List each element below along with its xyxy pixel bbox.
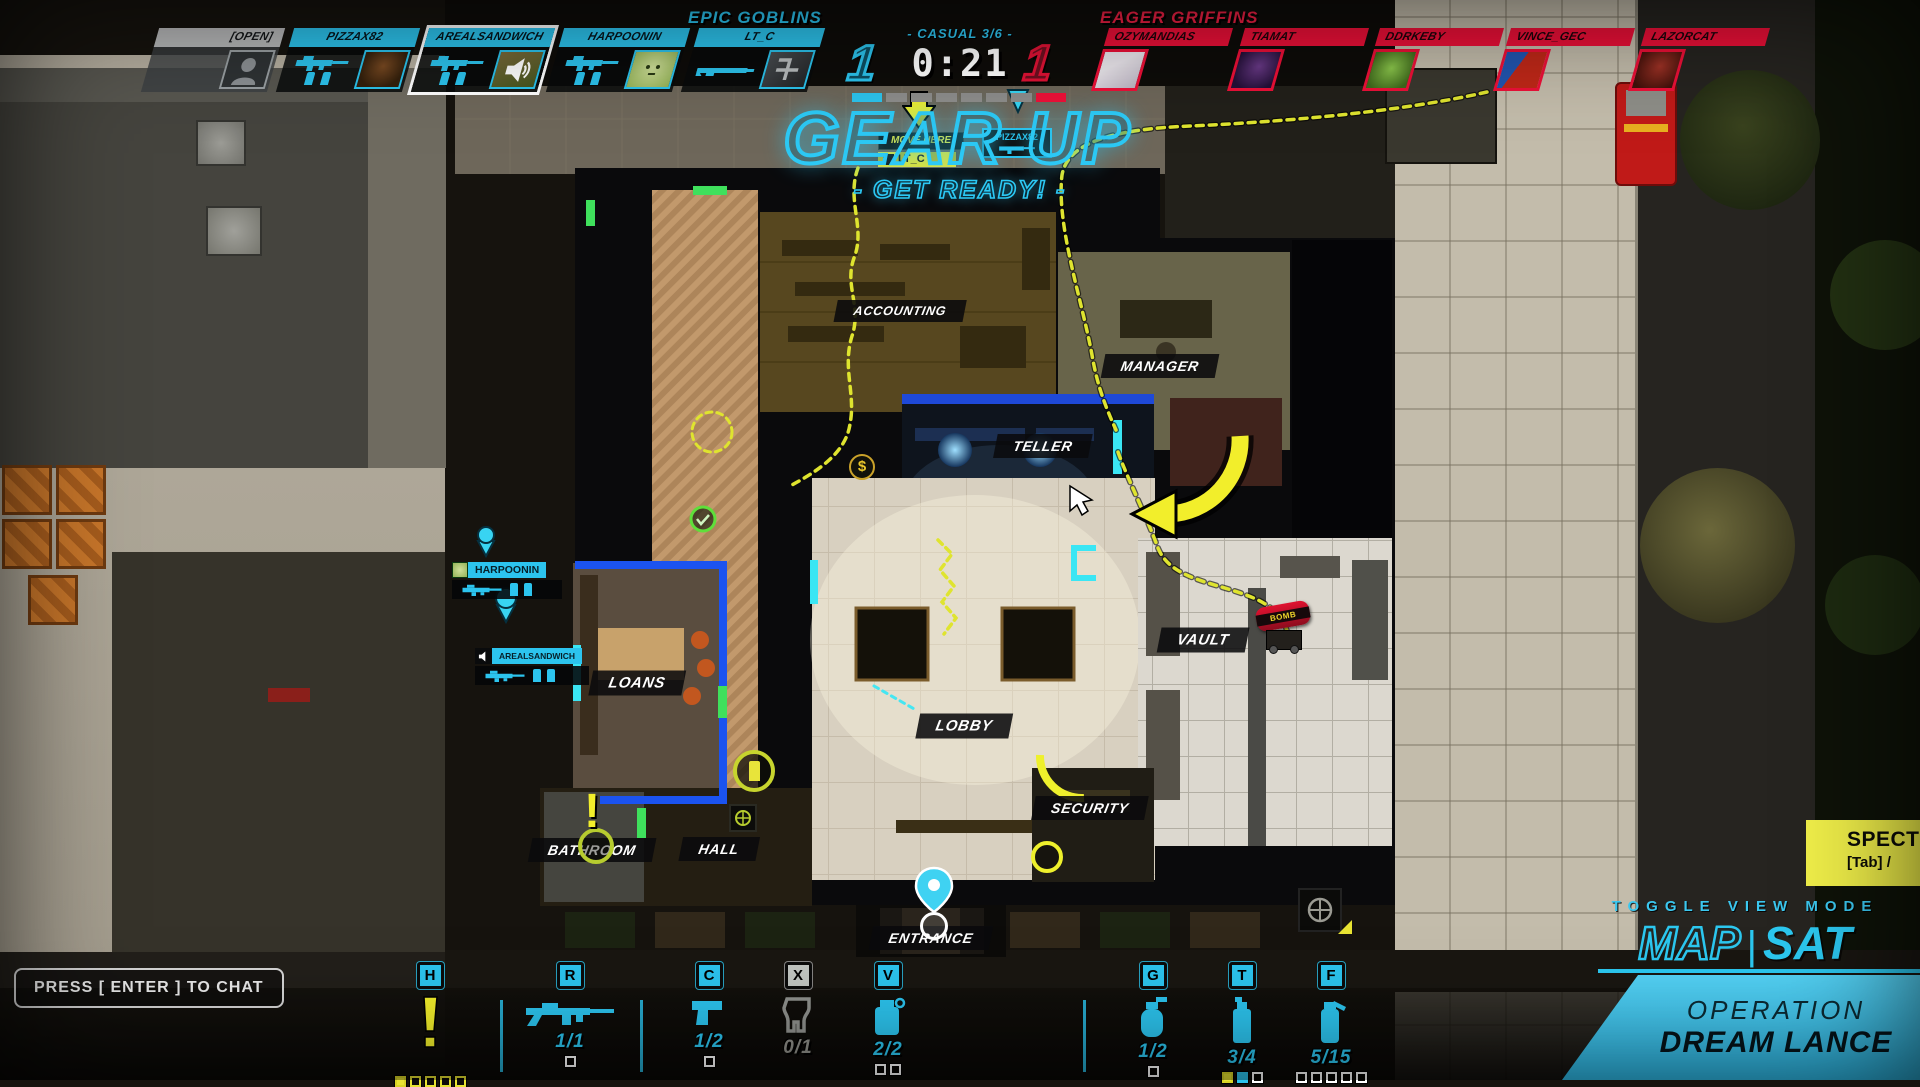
- hotkey-badge: F: [1318, 962, 1345, 989]
- avatar: [452, 562, 468, 578]
- hotkey-badge: R: [557, 962, 584, 989]
- split-circle-icon: [1306, 896, 1334, 924]
- hotkey-badge: T: [1229, 962, 1256, 989]
- cart-wheel: [1290, 645, 1299, 654]
- player-loadout: [551, 55, 630, 85]
- item-icon: [510, 583, 518, 596]
- announcement-subtitle: - GET READY! -: [0, 176, 1920, 205]
- alert-exclamation: !: [584, 788, 600, 836]
- shotgun-icon: [693, 63, 757, 77]
- panel-accent-line: [1598, 969, 1920, 973]
- pip: [886, 93, 907, 102]
- avatar: [624, 50, 681, 89]
- speaker-icon: [501, 57, 534, 83]
- cash-marker: $: [849, 454, 875, 480]
- player-card[interactable]: HARPOONIN: [546, 28, 690, 92]
- spray-can-icon: [749, 761, 760, 781]
- item-pips: [393, 1076, 468, 1087]
- pip: [565, 1056, 576, 1067]
- bomb-bag: BOMB: [1254, 599, 1311, 632]
- bomb-marker: BOMB: [1256, 604, 1310, 650]
- tag-loadout-bar: [452, 580, 562, 599]
- item-pips: [1220, 1072, 1265, 1083]
- room-label: VAULT: [1157, 628, 1250, 653]
- room-label: ACCOUNTING: [834, 300, 967, 322]
- pip: [890, 1064, 901, 1075]
- item-icon: [320, 72, 332, 85]
- player-card-highlighted[interactable]: AREALSANDWICH: [411, 28, 555, 92]
- avatar: [219, 50, 276, 89]
- player-card-open[interactable]: [OPEN]: [141, 28, 285, 92]
- item-icons: [574, 72, 602, 85]
- view-mode-toggle[interactable]: MAP|SAT: [1600, 916, 1890, 970]
- split-circle-icon: [734, 809, 752, 827]
- item-icon: [574, 72, 586, 85]
- objective-check-marker: [691, 507, 715, 531]
- arealsandwich-map-tag: AREALSANDWICH: [475, 648, 589, 685]
- toggle-view-label: TOGGLE VIEW MODE: [1600, 898, 1890, 915]
- avatar: [489, 50, 546, 89]
- smg-icon: [483, 670, 527, 682]
- player-card[interactable]: LT_C: [681, 28, 825, 92]
- player-name: [OPEN]: [154, 28, 285, 47]
- pip: [1341, 1072, 1352, 1083]
- item-pips: [563, 1056, 578, 1067]
- smg-icon: [562, 55, 623, 71]
- dark-rooms: [1292, 240, 1392, 538]
- smg-icon: [427, 55, 488, 71]
- player-card-body: [546, 47, 685, 92]
- pip: [1326, 1072, 1337, 1083]
- pip: [704, 1056, 715, 1067]
- ammo-count: 0/1: [783, 1037, 812, 1059]
- room-label: LOANS: [588, 671, 685, 696]
- pip: [1036, 93, 1066, 102]
- harpoonin-map-tag: HARPOONIN: [452, 562, 562, 599]
- hotbar-slot-rifle[interactable]: R 1/1: [504, 962, 636, 1067]
- announcement-title: GEAR UP: [0, 98, 1918, 180]
- pip: [1252, 1072, 1263, 1083]
- grenade-icon: [1135, 995, 1171, 1039]
- player-loadout: [688, 63, 762, 77]
- player-name: HARPOONIN: [559, 28, 690, 47]
- player-name: VINCE_GEC: [1506, 28, 1635, 46]
- flashbang-icon: [867, 995, 909, 1037]
- room-label: SECURITY: [1031, 796, 1149, 820]
- room-label: LOBBY: [915, 714, 1012, 739]
- chat-prompt[interactable]: PRESS [ ENTER ] TO CHAT: [14, 968, 284, 1008]
- equipment-box-marker: [1298, 888, 1342, 932]
- item-icons: [304, 72, 332, 85]
- player-name: TIAMAT: [1240, 28, 1369, 46]
- player-name: DDRKEBY: [1375, 28, 1504, 46]
- pip: [986, 93, 1007, 102]
- exclamation-icon: [420, 995, 440, 1049]
- team-name-right: EAGER GRIFFINS: [1100, 8, 1259, 28]
- player-card-body: [411, 47, 550, 92]
- view-mode-sat[interactable]: SAT: [1763, 917, 1852, 969]
- entrance-ring: [920, 912, 948, 940]
- lobby-table: [856, 608, 928, 680]
- item-icon: [455, 72, 467, 85]
- player-card-body: [681, 47, 820, 92]
- pistol-icon: [690, 995, 728, 1029]
- hotbar-divider: [500, 1000, 503, 1072]
- pip: [1237, 1072, 1248, 1083]
- pip: [911, 93, 932, 102]
- smg-icon: [460, 584, 504, 596]
- item-icon: [547, 669, 555, 682]
- enemy-card[interactable]: LAZORCAT: [1628, 28, 1770, 91]
- spectate-label: SPECT: [1847, 828, 1920, 852]
- tag-loadout-bar: [475, 666, 589, 685]
- score-left: 1: [845, 34, 879, 92]
- ammo-count: 1/2: [1138, 1041, 1167, 1063]
- room-label: TELLER: [993, 434, 1093, 458]
- avatar: [759, 50, 816, 89]
- hotkey-badge: H: [417, 962, 444, 989]
- pip: [395, 1076, 406, 1087]
- yellow-ring-marker: [1033, 843, 1061, 871]
- location-pin-icon: [914, 866, 954, 916]
- hotbar-slot-flashbang[interactable]: V 2/2: [822, 962, 954, 1075]
- item-pips: [873, 1064, 903, 1075]
- operation-label: OPERATION: [1687, 995, 1865, 1026]
- hotkey-badge: V: [875, 962, 902, 989]
- item-icon: [533, 669, 541, 682]
- ammo-count: 1/2: [694, 1031, 723, 1053]
- silhouette-icon: [229, 55, 266, 85]
- harness-icon: [777, 995, 819, 1035]
- rifle-icon: [522, 995, 618, 1029]
- corner-wedge: [1338, 920, 1352, 934]
- item-icon: [439, 72, 451, 85]
- player-loadout: [281, 55, 360, 85]
- player-name: OZYMANDIAS: [1104, 28, 1233, 46]
- team-name-left: EPIC GOBLINS: [688, 8, 822, 28]
- pip: [1011, 93, 1032, 102]
- speaker-icon: [475, 648, 492, 664]
- pip: [1148, 1066, 1159, 1077]
- pip: [936, 93, 957, 102]
- pip: [961, 93, 982, 102]
- ammo-count: 5/15: [1311, 1047, 1352, 1069]
- pip: [852, 93, 882, 102]
- smg-icon: [292, 55, 353, 71]
- player-card-body: [276, 47, 415, 92]
- hotkey-badge: C: [696, 962, 723, 989]
- bomb-cart: [1266, 630, 1302, 650]
- round-history-pips: [850, 93, 1068, 102]
- player-card-body: [141, 47, 280, 92]
- player-loadout: [416, 55, 495, 85]
- avatar: [354, 50, 411, 89]
- spray-can-icon: [1229, 995, 1255, 1045]
- teller-blue-wall: [902, 394, 1154, 404]
- item-pips: [1146, 1066, 1161, 1077]
- cart-wheel: [1269, 645, 1278, 654]
- pip: [1296, 1072, 1307, 1083]
- item-icon: [590, 72, 602, 85]
- hotkey-badge: G: [1140, 962, 1167, 989]
- spectate-button[interactable]: SPECT [Tab] /: [1806, 820, 1920, 886]
- pip: [425, 1076, 436, 1087]
- item-icons: [439, 72, 467, 85]
- ammo-count: 2/2: [873, 1039, 902, 1061]
- lobby-table: [1002, 608, 1074, 680]
- view-mode-map[interactable]: MAP: [1638, 917, 1740, 969]
- enemy-card[interactable]: TIAMAT: [1227, 28, 1369, 91]
- tag-name-row: HARPOONIN: [452, 562, 562, 578]
- tag-name-row: AREALSANDWICH: [475, 648, 589, 664]
- round-timer: 0:21: [898, 42, 1022, 85]
- player-card[interactable]: PIZZAX82: [276, 28, 420, 92]
- item-pips: [702, 1056, 717, 1067]
- item-pips: [1294, 1072, 1369, 1083]
- hotbar-slot-h[interactable]: H: [364, 962, 496, 1087]
- enemy-card[interactable]: VINCE_GEC: [1493, 28, 1635, 91]
- emblem-icon: [768, 56, 806, 84]
- game-screen: { "match": { "left_team": {"name": "EPIC…: [0, 0, 1920, 1080]
- enemy-card[interactable]: OZYMANDIAS: [1091, 28, 1233, 91]
- pip: [410, 1076, 421, 1087]
- operation-name: DREAM LANCE: [1660, 1026, 1893, 1060]
- bomb-label: BOMB: [1256, 606, 1311, 626]
- ammo-count: 1/1: [555, 1031, 584, 1053]
- pip: [440, 1076, 451, 1087]
- pip: [875, 1064, 886, 1075]
- equipment-box-marker: [729, 804, 757, 832]
- player-name: LAZORCAT: [1641, 28, 1770, 46]
- hotbar-slot-smoke[interactable]: F 5/15: [1265, 962, 1397, 1083]
- view-mode-divider: |: [1741, 924, 1763, 968]
- ammo-count: 3/4: [1227, 1047, 1256, 1069]
- room-label: MANAGER: [1101, 354, 1220, 378]
- item-icon: [524, 583, 532, 596]
- player-map-name: HARPOONIN: [468, 562, 546, 578]
- room-label: HALL: [678, 837, 759, 861]
- enemy-card[interactable]: DDRKEBY: [1362, 28, 1504, 91]
- gas-marker: [733, 750, 775, 792]
- smoke-grenade-icon: [1314, 995, 1348, 1045]
- player-map-name: AREALSANDWICH: [492, 648, 582, 664]
- pip: [455, 1076, 466, 1087]
- pip: [1356, 1072, 1367, 1083]
- hotkey-badge: X: [785, 962, 812, 989]
- player-name: AREALSANDWICH: [424, 28, 555, 47]
- face-icon: [638, 62, 667, 78]
- player-name: LT_C: [694, 28, 825, 47]
- player-name: PIZZAX82: [289, 28, 420, 47]
- hotbar-divider: [1083, 1000, 1086, 1072]
- spectate-keybind: [Tab] /: [1847, 854, 1920, 871]
- match-mode: - CASUAL 3/6 -: [898, 26, 1022, 41]
- pip: [1222, 1072, 1233, 1083]
- pip: [1311, 1072, 1322, 1083]
- score-right: 1: [1021, 34, 1055, 92]
- item-icon: [304, 72, 316, 85]
